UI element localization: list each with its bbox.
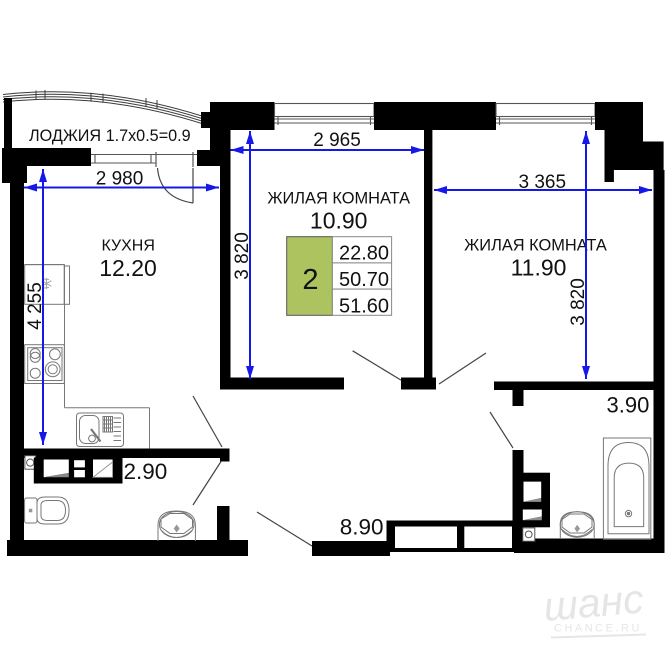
svg-text:2: 2	[302, 264, 318, 296]
svg-text:4 255: 4 255	[25, 282, 46, 330]
svg-text:ЖИЛАЯ КОМНАТА: ЖИЛАЯ КОМНАТА	[267, 190, 410, 208]
svg-text:ЛОДЖИЯ 1.7x0.5=0.9: ЛОДЖИЯ 1.7x0.5=0.9	[29, 127, 191, 145]
svg-text:22.80: 22.80	[339, 243, 389, 265]
svg-text:2 980: 2 980	[96, 169, 144, 190]
svg-text:КУХНЯ: КУХНЯ	[101, 238, 154, 255]
svg-text:12.20: 12.20	[99, 255, 157, 281]
svg-text:11.90: 11.90	[511, 255, 567, 281]
svg-text:2 965: 2 965	[313, 130, 361, 151]
svg-text:3 820: 3 820	[232, 232, 253, 280]
svg-text:10.90: 10.90	[310, 208, 368, 234]
svg-text:3.90: 3.90	[607, 393, 650, 418]
svg-text:2.90: 2.90	[124, 459, 168, 484]
svg-text:51.60: 51.60	[339, 295, 389, 317]
svg-text:50.70: 50.70	[339, 269, 389, 291]
svg-text:8.90: 8.90	[340, 515, 384, 540]
svg-text:3 365: 3 365	[519, 172, 567, 193]
svg-text:3 820: 3 820	[568, 278, 589, 326]
svg-text:CHANCE.RU: CHANCE.RU	[554, 623, 642, 635]
